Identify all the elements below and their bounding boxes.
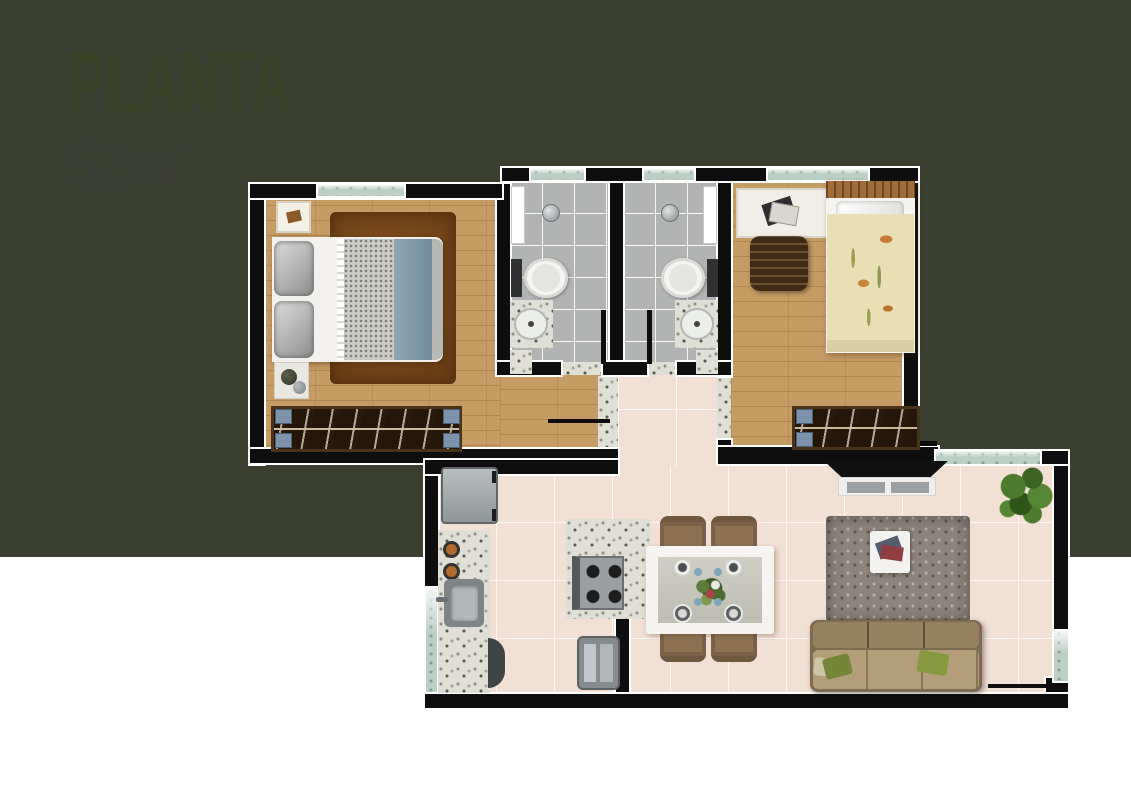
counter-burner xyxy=(443,563,460,580)
potted-plant xyxy=(994,464,1058,528)
cup xyxy=(714,598,722,606)
bed-headboard xyxy=(826,181,915,198)
bathroom-2-shelf xyxy=(696,350,718,374)
bathroom-1-shelf xyxy=(510,350,532,374)
picture-motif xyxy=(286,210,302,224)
sink-basin xyxy=(450,585,478,621)
bedroom-1-window xyxy=(318,185,404,196)
books xyxy=(880,545,904,562)
place-setting xyxy=(724,558,743,577)
cooktop xyxy=(572,556,624,610)
blanket-fold xyxy=(827,340,914,352)
toilet-seat xyxy=(669,264,697,292)
desk xyxy=(736,188,828,238)
sink-faucet xyxy=(436,597,448,602)
bed-sheet xyxy=(314,239,344,360)
hallway-floor xyxy=(618,374,731,468)
oven xyxy=(577,636,620,690)
wall-between-bath-doors xyxy=(603,362,647,375)
living-room-right-window xyxy=(1054,631,1068,681)
kitchen-service-window xyxy=(426,588,437,692)
bathroom-1-door-leaf xyxy=(601,310,606,364)
tv xyxy=(824,461,948,477)
counter-burner xyxy=(443,541,460,558)
place-setting xyxy=(673,558,692,577)
floor-plan xyxy=(0,0,1131,800)
cup xyxy=(694,568,702,576)
wall-bathroom1-bathroom2 xyxy=(610,168,623,374)
place-setting xyxy=(673,604,692,623)
console-drawer xyxy=(847,482,885,493)
double-bed xyxy=(272,237,443,362)
wardrobe-box xyxy=(796,409,813,424)
wardrobe-box xyxy=(443,409,460,424)
bathroom-2-door-leaf xyxy=(647,310,652,364)
toilet-seat xyxy=(532,264,560,292)
side-table xyxy=(274,362,309,399)
toilet-tank xyxy=(511,259,522,297)
wardrobe-box xyxy=(796,432,813,447)
sofa-back-cushions xyxy=(813,622,979,648)
oven-rack xyxy=(584,644,596,682)
cup xyxy=(694,598,702,606)
washbasin-drain xyxy=(528,321,534,327)
kitchen-sink xyxy=(444,579,484,627)
shower-glass-panel xyxy=(511,186,525,244)
toilet-bowl xyxy=(524,258,568,298)
bathroom-1-window xyxy=(531,169,584,180)
washbasin-counter xyxy=(675,300,718,348)
wall-left-bedroom1 xyxy=(250,184,264,464)
office-chair xyxy=(750,236,808,291)
washbasin-counter xyxy=(510,300,553,348)
page: { "header": { "title": "PLANTA", "area_v… xyxy=(0,0,1131,800)
bed-blanket-fold xyxy=(432,239,443,360)
coffee-table xyxy=(870,531,910,573)
cup xyxy=(714,568,722,576)
balcony-door-leaf xyxy=(988,684,1046,688)
bedroom-2-window xyxy=(768,169,868,180)
floral-blanket xyxy=(827,214,914,340)
oven-rack xyxy=(600,644,613,682)
single-bed xyxy=(826,181,915,353)
bed-blanket-knit xyxy=(344,239,394,360)
fridge-handle xyxy=(492,509,496,521)
shower-glass-panel xyxy=(703,186,717,244)
washbasin-drain xyxy=(694,321,700,327)
wall-top-living-corner xyxy=(1040,451,1068,464)
fridge-handle xyxy=(492,471,496,483)
toilet-tank xyxy=(707,259,718,297)
sofa xyxy=(810,620,982,692)
wall-bedroom1-bathroom1 xyxy=(497,184,510,374)
plant-pot-light xyxy=(293,381,306,394)
wall-bathroom2-bedroom2 xyxy=(718,168,731,376)
bedroom-1-door-leaf xyxy=(548,419,610,423)
living-room-top-window xyxy=(936,451,1040,464)
bed-pillow-top xyxy=(274,241,314,296)
bed-blanket-blue-stripe xyxy=(394,239,432,360)
toilet-bowl xyxy=(661,258,705,298)
wall-bottom-main xyxy=(425,694,1068,708)
bathroom-1-door-threshold xyxy=(559,362,603,375)
wall-picture xyxy=(276,201,311,233)
fridge xyxy=(441,467,498,524)
bathroom-2-window xyxy=(644,169,694,180)
bedroom-2-door-threshold xyxy=(717,376,731,440)
bedroom-1-wardrobe xyxy=(271,406,462,452)
console-drawer xyxy=(891,482,929,493)
shower-head xyxy=(542,204,560,222)
tv-console xyxy=(838,477,936,496)
wardrobe-box xyxy=(275,433,292,448)
wardrobe-box xyxy=(443,433,460,448)
place-setting xyxy=(724,604,743,623)
bed-pillow-bottom xyxy=(274,301,314,358)
shower-head xyxy=(661,204,679,222)
wardrobe-box xyxy=(275,409,292,424)
